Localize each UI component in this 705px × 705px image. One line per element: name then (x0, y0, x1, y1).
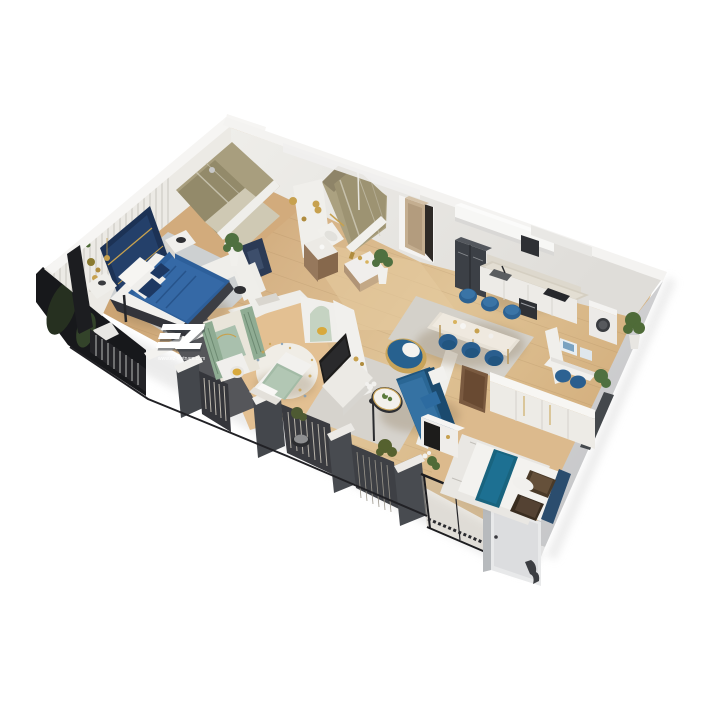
svg-text:www.ez-vietnam.com: www.ez-vietnam.com (158, 356, 205, 362)
